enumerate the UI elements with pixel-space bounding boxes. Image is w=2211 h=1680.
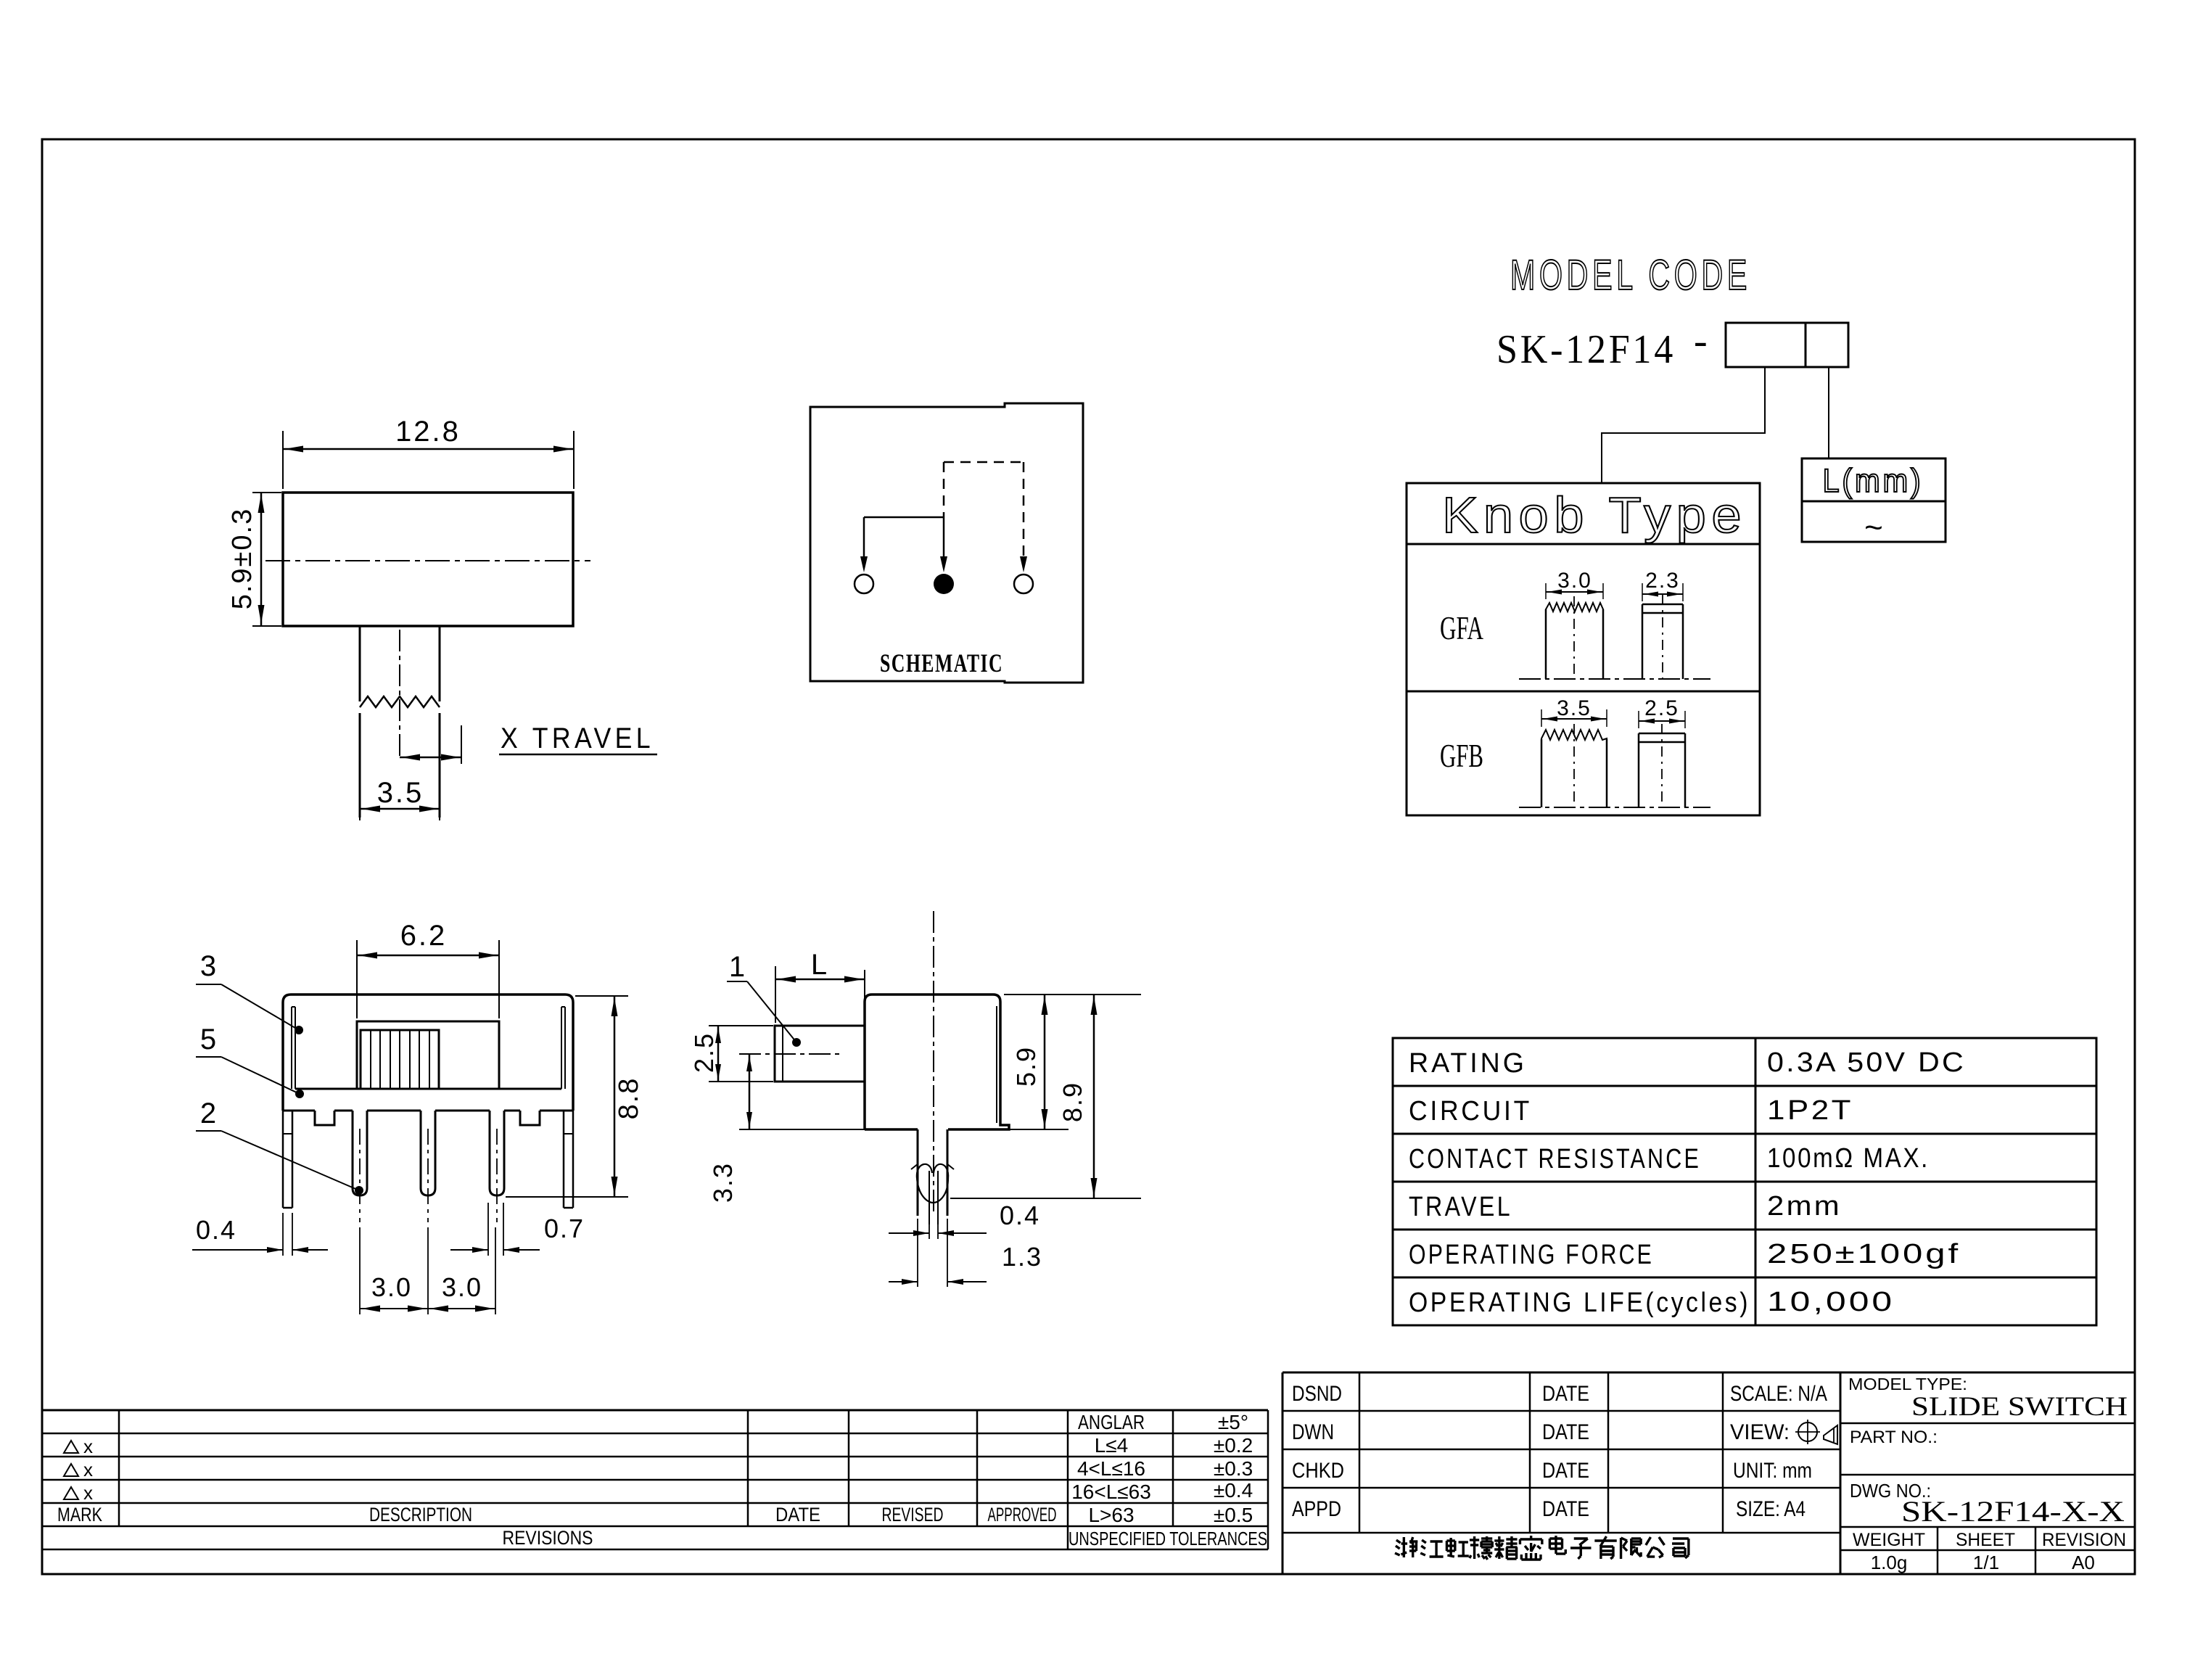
- svg-text:DATE: DATE: [775, 1504, 820, 1525]
- svg-text:SCALE: N/A: SCALE: N/A: [1730, 1382, 1827, 1406]
- svg-text:x: x: [83, 1436, 93, 1457]
- svg-text:SK-12F14: SK-12F14: [1496, 327, 1676, 372]
- svg-text:OPERATING FORCE: OPERATING FORCE: [1409, 1240, 1654, 1270]
- svg-text:5.9: 5.9: [1011, 1046, 1041, 1087]
- svg-text:3.3: 3.3: [708, 1162, 738, 1203]
- svg-text:x: x: [83, 1482, 93, 1504]
- svg-text:5: 5: [200, 1024, 216, 1055]
- svg-text:L(mm): L(mm): [1823, 462, 1924, 499]
- svg-text:3.0: 3.0: [442, 1272, 482, 1302]
- svg-text:3.5: 3.5: [1557, 696, 1592, 720]
- svg-text:Knob Type: Knob Type: [1442, 487, 1747, 543]
- svg-text:DSND: DSND: [1292, 1382, 1342, 1406]
- svg-text:250±100gf: 250±100gf: [1767, 1239, 1961, 1269]
- svg-text:UNSPECIFIED TOLERANCES: UNSPECIFIED TOLERANCES: [1069, 1528, 1267, 1549]
- svg-text:RATING: RATING: [1409, 1048, 1527, 1079]
- svg-text:CIRCUIT: CIRCUIT: [1409, 1096, 1532, 1127]
- svg-text:2mm: 2mm: [1767, 1191, 1842, 1222]
- svg-text:12.8: 12.8: [395, 416, 461, 448]
- svg-text:SK-12F14-X-X: SK-12F14-X-X: [1901, 1495, 2125, 1528]
- svg-text:CHKD: CHKD: [1292, 1459, 1344, 1483]
- svg-text:3.0: 3.0: [1557, 569, 1592, 593]
- svg-text:2.5: 2.5: [689, 1032, 719, 1073]
- svg-text:100mΩ MAX.: 100mΩ MAX.: [1767, 1143, 1930, 1174]
- svg-text:1: 1: [729, 951, 745, 983]
- svg-text:16<L≤63: 16<L≤63: [1071, 1481, 1151, 1503]
- svg-text:A0: A0: [2072, 1552, 2095, 1573]
- svg-text:1.0g: 1.0g: [1871, 1552, 1908, 1573]
- svg-text:DATE: DATE: [1542, 1382, 1589, 1406]
- svg-text:DATE: DATE: [1542, 1420, 1589, 1444]
- svg-text:8.8: 8.8: [614, 1077, 644, 1120]
- svg-text:L: L: [811, 949, 827, 981]
- svg-text:DATE: DATE: [1542, 1497, 1589, 1521]
- svg-text:UNIT: mm: UNIT: mm: [1733, 1459, 1812, 1483]
- svg-text:5.9±0.3: 5.9±0.3: [227, 508, 258, 610]
- svg-text:1P2T: 1P2T: [1767, 1095, 1853, 1126]
- svg-text:SIZE: A4: SIZE: A4: [1736, 1497, 1806, 1521]
- svg-text:-: -: [1694, 318, 1708, 363]
- svg-text:DESCRIPTION: DESCRIPTION: [369, 1504, 472, 1525]
- svg-text:8.9: 8.9: [1058, 1082, 1087, 1122]
- svg-text:0.7: 0.7: [544, 1214, 585, 1243]
- svg-text:0.4: 0.4: [1000, 1201, 1040, 1230]
- svg-text:±0.4: ±0.4: [1214, 1479, 1253, 1502]
- svg-text:CONTACT RESISTANCE: CONTACT RESISTANCE: [1409, 1144, 1701, 1174]
- svg-text:MODEL TYPE:: MODEL TYPE:: [1848, 1375, 1967, 1393]
- svg-text:REVISED: REVISED: [882, 1504, 944, 1525]
- svg-text:PART NO.:: PART NO.:: [1850, 1428, 1938, 1447]
- svg-text:2.5: 2.5: [1644, 696, 1679, 720]
- svg-text:SLIDE SWITCH: SLIDE SWITCH: [1911, 1392, 2128, 1422]
- svg-text:0.4: 0.4: [196, 1215, 236, 1245]
- svg-text:3.5: 3.5: [377, 777, 424, 809]
- svg-text:3.0: 3.0: [371, 1272, 412, 1302]
- svg-text:L≤4: L≤4: [1095, 1434, 1129, 1457]
- svg-text:MARK: MARK: [57, 1504, 102, 1525]
- svg-text:±0.5: ±0.5: [1214, 1504, 1253, 1526]
- svg-text:GFB: GFB: [1440, 737, 1483, 774]
- svg-text:4<L≤16: 4<L≤16: [1077, 1457, 1145, 1480]
- svg-text:APPROVED: APPROVED: [988, 1504, 1057, 1525]
- svg-text:SHEET: SHEET: [1956, 1530, 2015, 1550]
- svg-text:APPD: APPD: [1292, 1497, 1341, 1521]
- svg-text:VIEW:: VIEW:: [1730, 1420, 1790, 1444]
- svg-text:OPERATING LIFE(cycles): OPERATING LIFE(cycles): [1409, 1288, 1750, 1318]
- svg-text:X TRAVEL: X TRAVEL: [501, 722, 654, 754]
- svg-text:REVISIONS: REVISIONS: [503, 1527, 593, 1549]
- svg-text:±5°: ±5°: [1218, 1411, 1248, 1433]
- svg-text:L>63: L>63: [1088, 1504, 1134, 1526]
- svg-text:1/1: 1/1: [1973, 1552, 1999, 1573]
- svg-text:3: 3: [200, 950, 216, 982]
- svg-text:TRAVEL: TRAVEL: [1409, 1192, 1512, 1222]
- svg-text:SCHEMATIC: SCHEMATIC: [880, 648, 1003, 678]
- svg-text:ANGLAR: ANGLAR: [1078, 1411, 1145, 1433]
- svg-text:DATE: DATE: [1542, 1459, 1589, 1483]
- svg-text:~: ~: [1864, 510, 1883, 545]
- svg-text:DWN: DWN: [1292, 1420, 1334, 1444]
- svg-text:10,000: 10,000: [1767, 1287, 1895, 1317]
- svg-text:GFA: GFA: [1440, 609, 1483, 646]
- svg-text:6.2: 6.2: [400, 920, 448, 952]
- svg-text:±0.2: ±0.2: [1214, 1434, 1253, 1457]
- svg-text:2: 2: [200, 1098, 216, 1129]
- svg-text:WEIGHT: WEIGHT: [1853, 1530, 1925, 1550]
- svg-text:MODEL CODE: MODEL CODE: [1510, 252, 1751, 299]
- svg-text:REVISION: REVISION: [2042, 1530, 2126, 1550]
- svg-text:0.3A 50V DC: 0.3A 50V DC: [1767, 1047, 1966, 1078]
- svg-text:±0.3: ±0.3: [1214, 1457, 1253, 1480]
- svg-text:2.3: 2.3: [1645, 569, 1680, 593]
- svg-text:1.3: 1.3: [1002, 1242, 1042, 1272]
- svg-text:x: x: [83, 1459, 93, 1481]
